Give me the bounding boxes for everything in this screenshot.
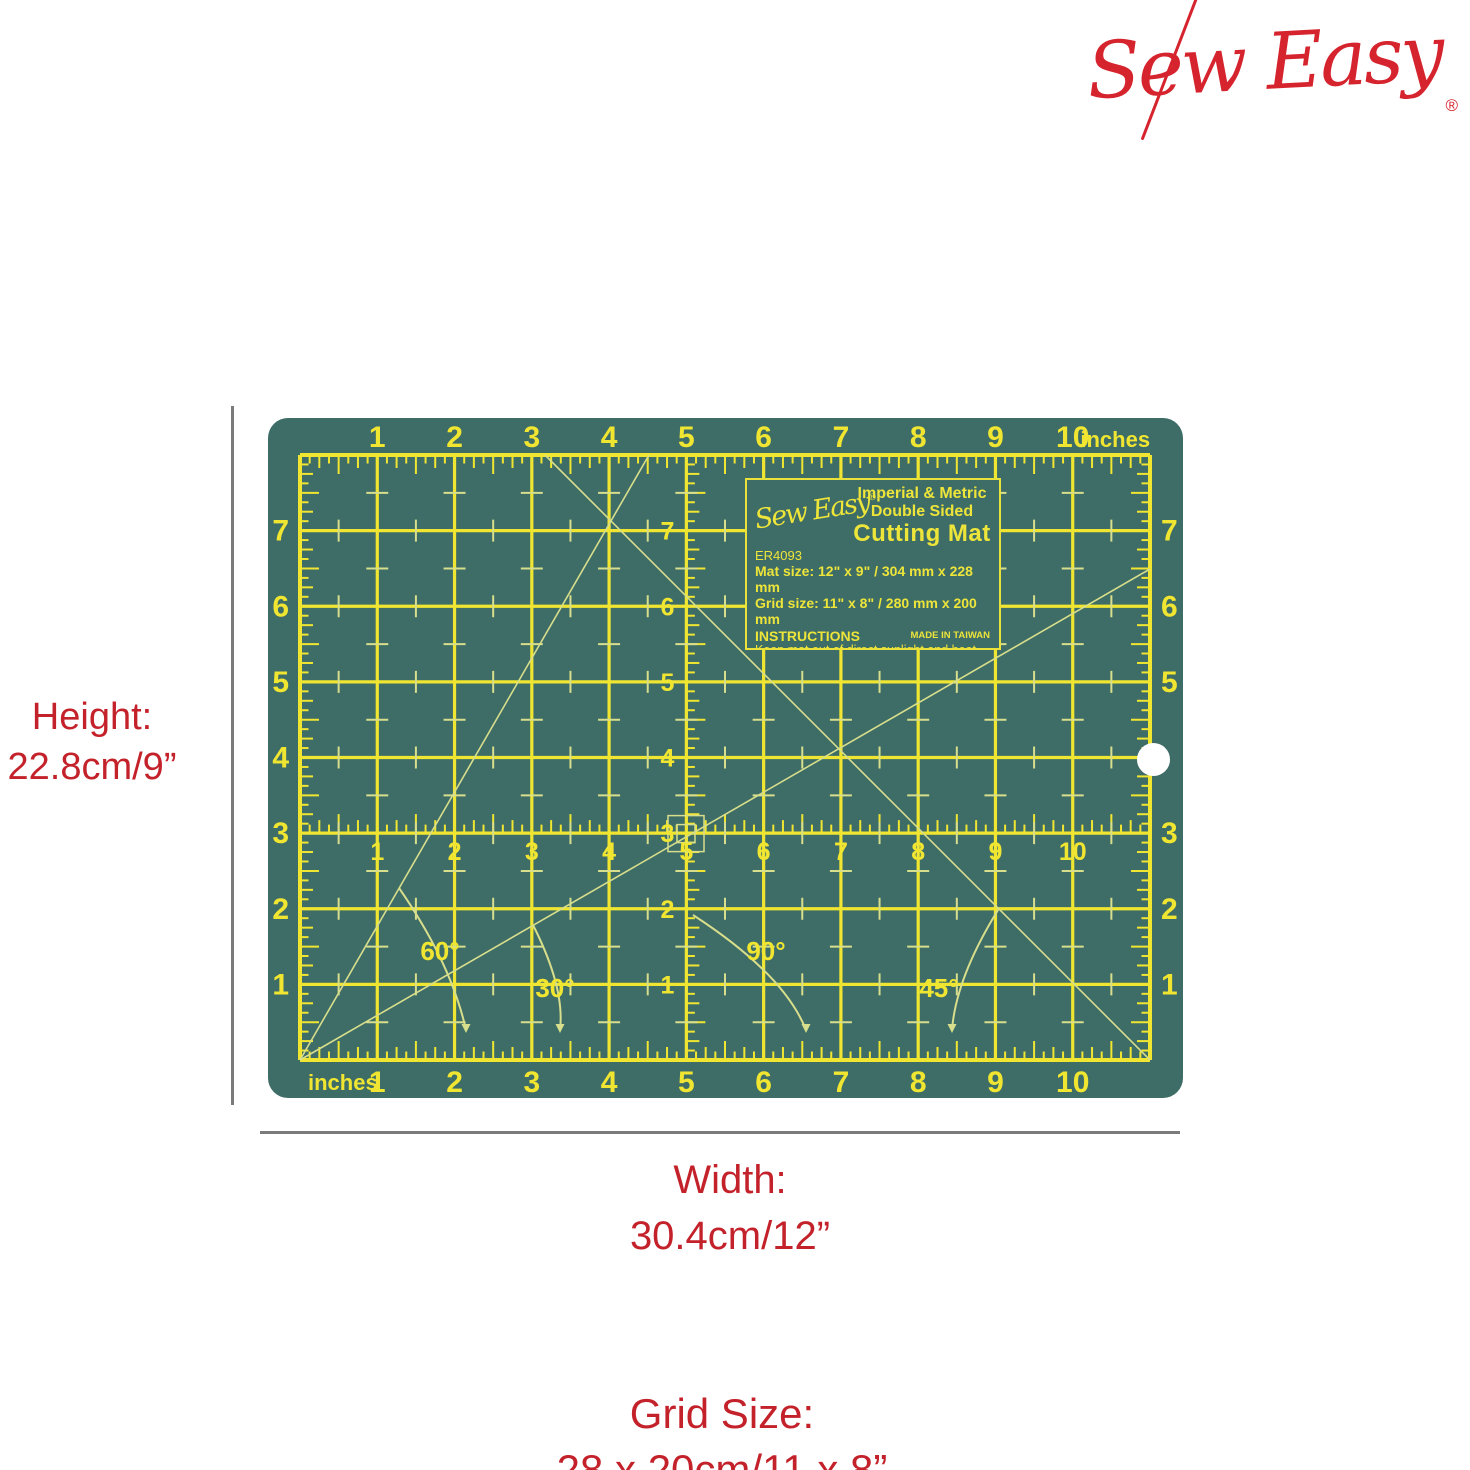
label-made-in: MADE IN TAIWAN <box>910 630 990 641</box>
svg-text:6: 6 <box>755 1066 772 1098</box>
cutting-mat-graphic: 12345678910inches12345678910inches123456… <box>268 418 1183 1098</box>
svg-text:7: 7 <box>834 838 848 866</box>
svg-text:1: 1 <box>369 421 386 454</box>
product-image: Sew Easy ® Height: 22.8cm/9” Width: 30.4… <box>0 0 1470 1470</box>
svg-text:inches: inches <box>308 1070 378 1095</box>
svg-text:6: 6 <box>757 838 771 866</box>
svg-text:1: 1 <box>660 971 674 999</box>
svg-text:3: 3 <box>523 421 540 454</box>
svg-text:2: 2 <box>446 1066 463 1098</box>
svg-text:8: 8 <box>910 421 927 454</box>
svg-text:5: 5 <box>679 838 693 866</box>
svg-text:4: 4 <box>601 1066 618 1098</box>
svg-text:1: 1 <box>370 838 384 866</box>
width-annotation: Width: 30.4cm/12” <box>530 1152 930 1264</box>
label-model: ER4093 <box>755 548 991 563</box>
width-label: Width: <box>530 1152 930 1208</box>
label-grid-size: Grid size: 11" x 8" / 280 mm x 200 mm <box>755 595 991 627</box>
height-annotation: Height: 22.8cm/9” <box>0 692 190 792</box>
svg-text:8: 8 <box>911 838 925 866</box>
sew-easy-logo: Sew Easy ® <box>1120 0 1470 165</box>
svg-text:inches: inches <box>1080 427 1150 452</box>
svg-text:3: 3 <box>523 1066 540 1098</box>
grid-size-label: Grid Size: <box>520 1386 924 1442</box>
svg-text:2: 2 <box>272 893 289 926</box>
width-value: 30.4cm/12” <box>530 1208 930 1264</box>
svg-text:10: 10 <box>1056 1066 1089 1098</box>
svg-text:5: 5 <box>678 1066 695 1098</box>
svg-text:4: 4 <box>602 838 616 866</box>
svg-text:9: 9 <box>989 838 1003 866</box>
svg-text:7: 7 <box>833 1066 850 1098</box>
svg-text:5: 5 <box>660 669 674 697</box>
label-registered: ® <box>867 493 875 504</box>
label-brand: Sew Easy® <box>751 478 857 554</box>
svg-text:2: 2 <box>448 838 462 866</box>
label-mat-size: Mat size: 12" x 9" / 304 mm x 228 mm <box>755 563 991 595</box>
svg-text:5: 5 <box>678 421 695 454</box>
svg-text:8: 8 <box>910 1066 927 1098</box>
label-instruction-line: Keep mat out of direct sunlight and heat… <box>755 644 991 650</box>
svg-text:2: 2 <box>660 896 674 924</box>
svg-text:1: 1 <box>1161 968 1178 1001</box>
grid-size-value: 28 x 20cm/11 x 8” <box>520 1442 924 1470</box>
svg-text:7: 7 <box>272 515 289 548</box>
logo-text: Sew Easy <box>1085 9 1444 117</box>
svg-text:6: 6 <box>755 421 772 454</box>
label-title: Cutting Mat <box>853 521 991 547</box>
svg-text:5: 5 <box>1161 666 1178 699</box>
svg-text:6: 6 <box>272 590 289 623</box>
svg-text:90°: 90° <box>746 936 785 966</box>
grid-size-annotation: Grid Size: 28 x 20cm/11 x 8” <box>520 1386 924 1470</box>
width-dimension-line <box>260 1131 1180 1134</box>
svg-text:3: 3 <box>272 817 289 850</box>
svg-text:4: 4 <box>660 745 674 773</box>
svg-text:1: 1 <box>272 968 289 1001</box>
svg-text:2: 2 <box>446 421 463 454</box>
svg-text:6: 6 <box>1161 590 1178 623</box>
svg-text:9: 9 <box>987 1066 1004 1098</box>
svg-text:30°: 30° <box>535 973 574 1003</box>
height-value: 22.8cm/9” <box>0 742 190 792</box>
svg-text:7: 7 <box>1161 515 1178 548</box>
svg-text:6: 6 <box>660 593 674 621</box>
svg-text:4: 4 <box>601 421 618 454</box>
height-dimension-line <box>231 406 234 1105</box>
svg-text:9: 9 <box>987 421 1004 454</box>
svg-text:4: 4 <box>272 742 289 775</box>
svg-text:60°: 60° <box>420 936 459 966</box>
svg-text:3: 3 <box>1161 817 1178 850</box>
svg-text:7: 7 <box>660 518 674 546</box>
svg-text:10: 10 <box>1059 838 1087 866</box>
cutting-mat: 12345678910inches12345678910inches123456… <box>268 418 1183 1098</box>
svg-text:2: 2 <box>1161 893 1178 926</box>
svg-text:3: 3 <box>660 820 674 848</box>
svg-text:45°: 45° <box>919 973 958 1003</box>
label-heading-line2: Double Sided <box>853 503 991 521</box>
mat-info-label: Sew Easy® Imperial & Metric Double Sided… <box>745 478 1001 650</box>
svg-text:7: 7 <box>833 421 850 454</box>
svg-text:5: 5 <box>272 666 289 699</box>
svg-text:3: 3 <box>525 838 539 866</box>
registered-mark: ® <box>1445 96 1458 116</box>
height-label: Height: <box>0 692 190 742</box>
